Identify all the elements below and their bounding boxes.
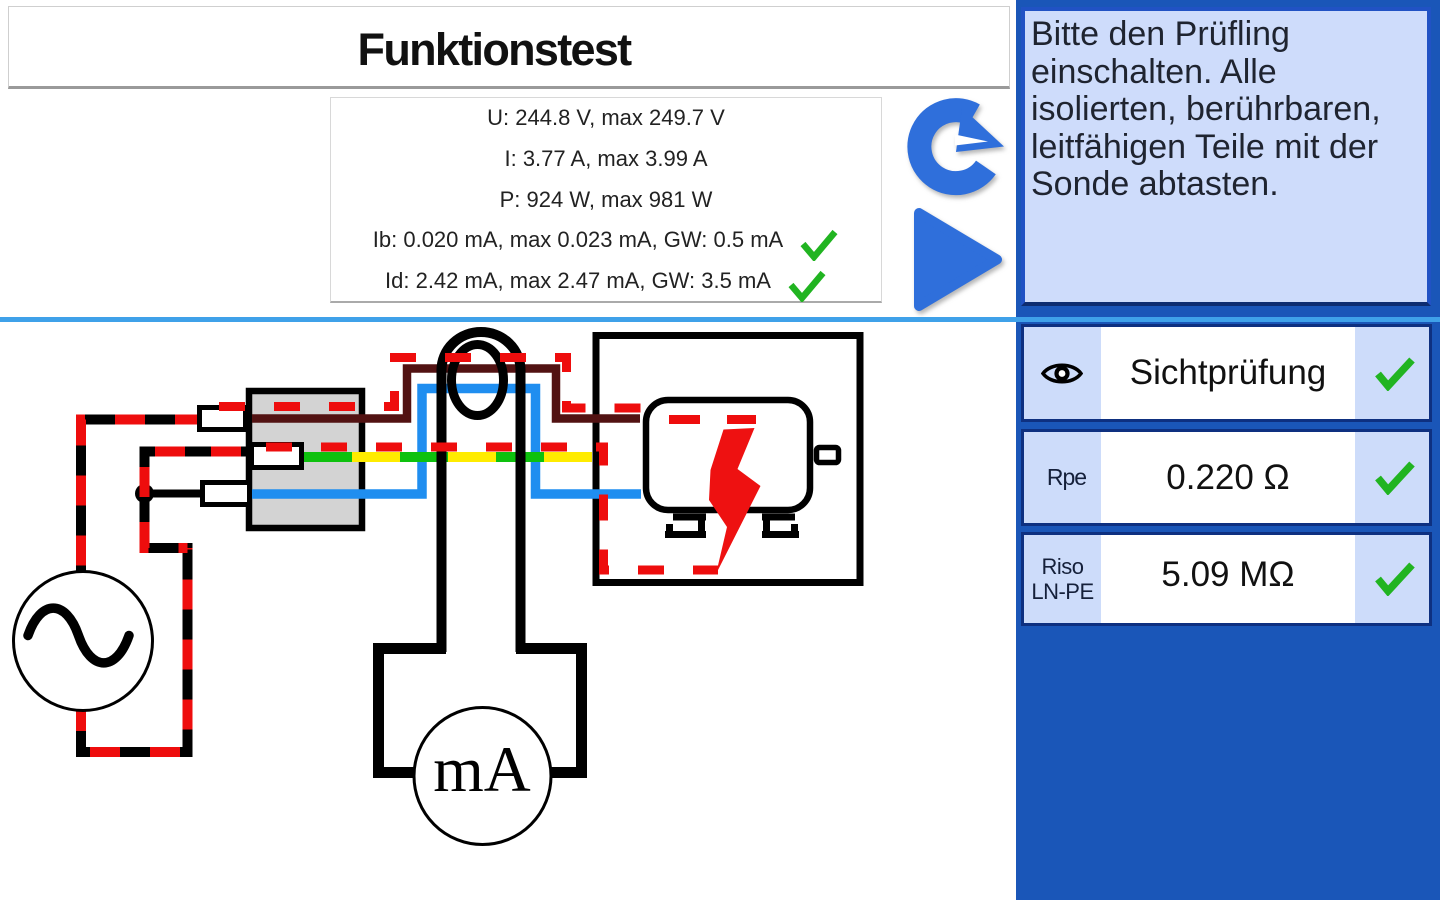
svg-text:mA: mA (433, 734, 531, 806)
